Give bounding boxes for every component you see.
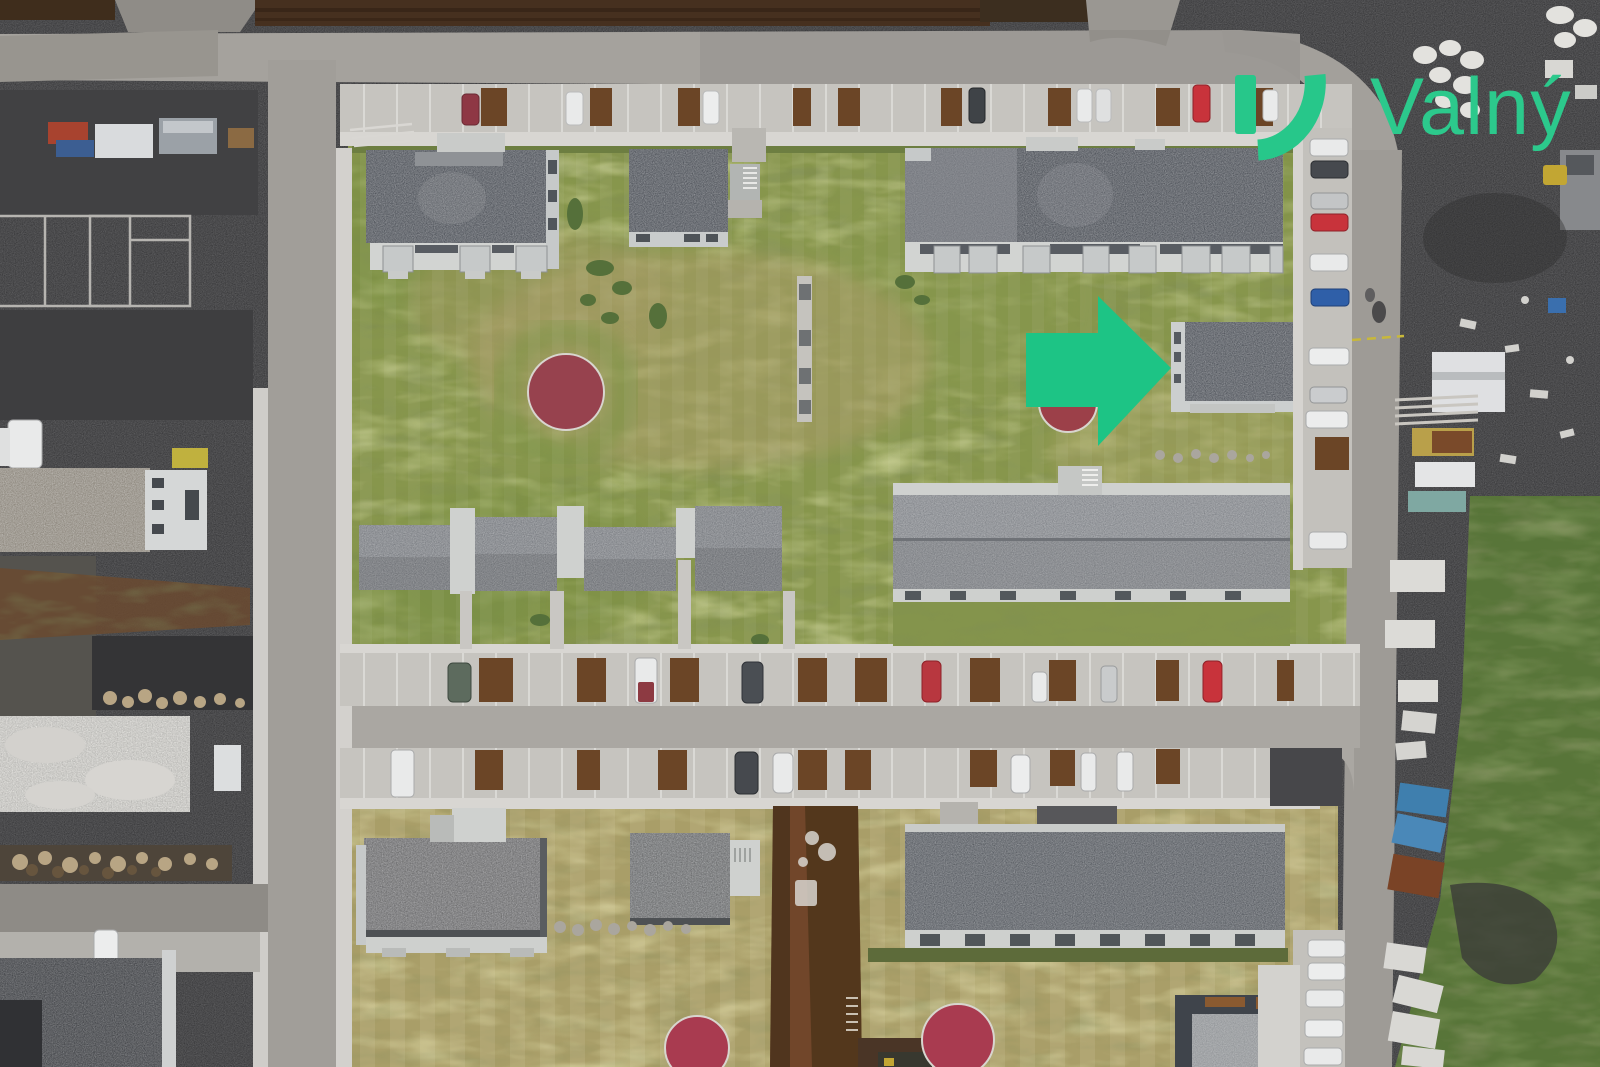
svg-text:Valný: Valný <box>1370 62 1572 152</box>
